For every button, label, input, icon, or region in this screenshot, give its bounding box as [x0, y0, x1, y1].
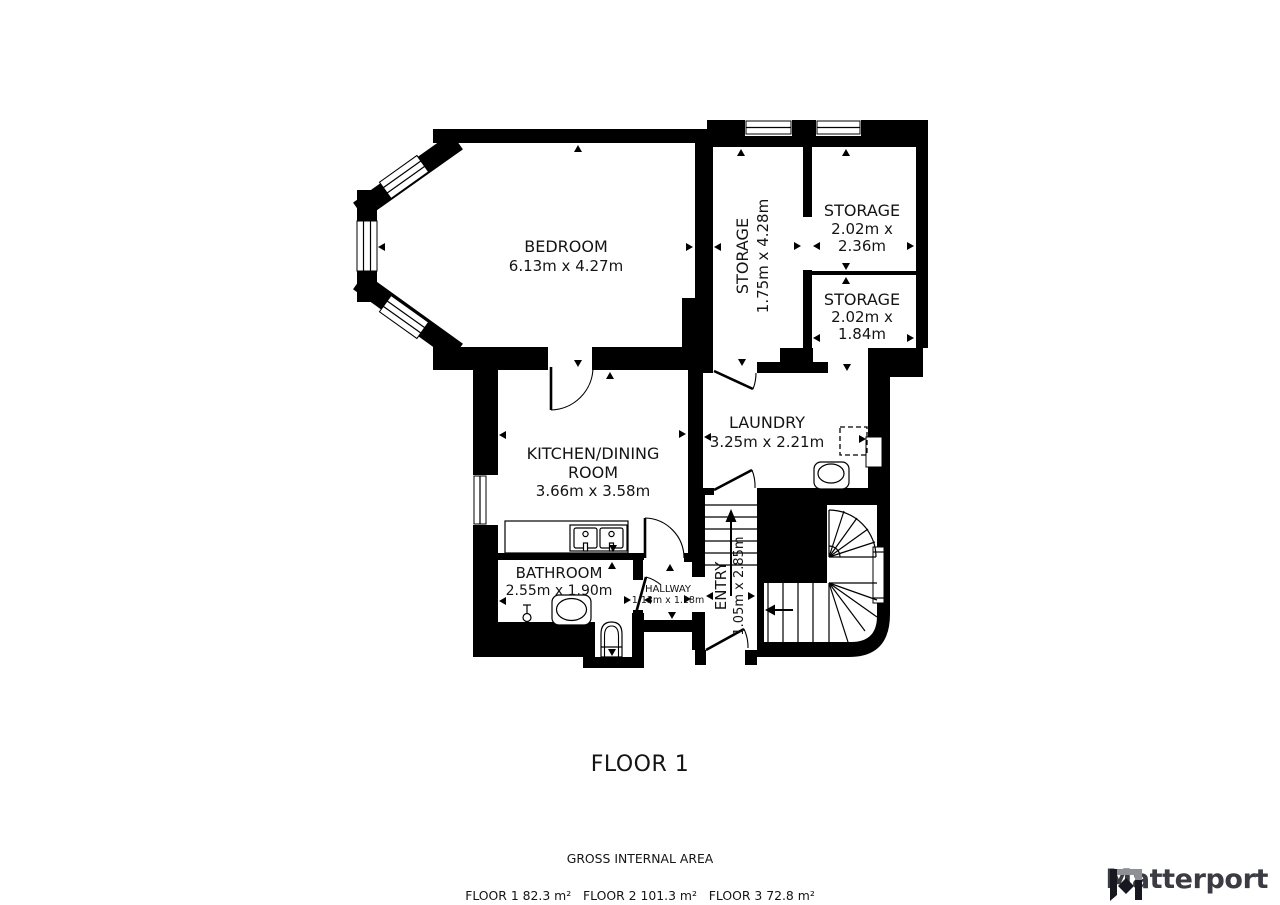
winder-stairs-upper [829, 510, 876, 557]
storage-tall-dims: 1.75m x 4.28m [754, 199, 772, 313]
storage-upper-dims-2: 2.36m [838, 237, 886, 255]
bedroom-kitchen-door-icon [551, 367, 593, 410]
bay-window-left-icon [357, 221, 377, 271]
floor-areas-line: FLOOR 1 82.3 m² FLOOR 2 101.3 m² FLOOR 3… [0, 890, 1280, 902]
storage-lower-dims-2: 1.84m [838, 325, 886, 343]
laundry-niche-icon [866, 437, 882, 467]
storage-laundry-door-icon [714, 371, 756, 389]
floorplan-page: BEDROOM 6.13m x 4.27m STORAGE 1.75m x 4.… [0, 0, 1280, 905]
bathroom-sink-icon [552, 595, 591, 625]
bedroom-dims: 6.13m x 4.27m [509, 257, 623, 275]
entry-dims: 1.05m x 2.85m [732, 536, 747, 635]
storage-lower-dims-1: 2.02m x [831, 308, 893, 326]
floor-title: FLOOR 1 [0, 752, 1280, 777]
kitchen-window-icon [473, 475, 498, 525]
winder-stairs-lower [768, 583, 877, 642]
storage-upper-dims-1: 2.02m x [831, 220, 893, 238]
hallway-dims: 1.13m x 1.18m [632, 595, 704, 606]
laundry-label: LAUNDRY [729, 413, 805, 432]
bedroom-label: BEDROOM [524, 237, 608, 256]
bathroom-label: BATHROOM [516, 564, 603, 582]
laundry-entry-door-icon [714, 470, 755, 490]
storage-window-2-icon [816, 120, 861, 136]
kitchen-label-2: ROOM [568, 463, 618, 482]
storage-upper-label: STORAGE [824, 201, 900, 220]
area-summary: GROSS INTERNAL AREA FLOOR 1 82.3 m² FLOO… [0, 828, 1280, 905]
laundry-appliance-dashed-icon [840, 427, 867, 455]
laundry-toilet-icon [814, 462, 849, 489]
matterport-brand: Matterport [1105, 864, 1268, 895]
storage-window-1-icon [745, 120, 792, 136]
stairs-niche-icon [873, 547, 884, 603]
matterport-m-icon [1105, 864, 1147, 905]
kitchen-hallway-door-icon [645, 518, 684, 558]
bay-window-top-icon [379, 156, 428, 199]
storage-tall-label: STORAGE [733, 218, 752, 294]
kitchen-label-1: KITCHEN/DINING [527, 444, 660, 463]
hallway-label: HALLWAY [645, 584, 692, 595]
kitchen-dims: 3.66m x 3.58m [536, 482, 650, 500]
kitchen-counter [505, 521, 628, 553]
laundry-dims: 3.25m x 2.21m [710, 433, 824, 451]
storage-lower-label: STORAGE [824, 290, 900, 309]
stairs-left-arrow-icon [765, 605, 793, 616]
bathroom-faucet-icon [523, 605, 531, 622]
gross-internal-area-title: GROSS INTERNAL AREA [0, 853, 1280, 865]
entry-label: ENTRY [712, 561, 730, 610]
bathroom-dims: 2.55m x 1.90m [506, 583, 613, 599]
